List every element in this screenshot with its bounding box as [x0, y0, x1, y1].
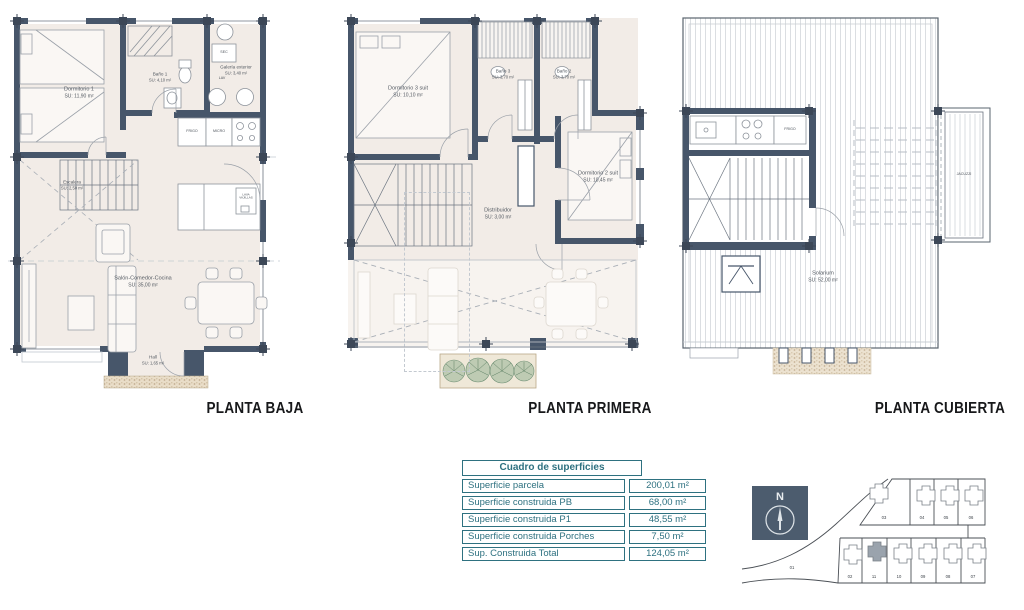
dishwasher-label: LAVA VAJILLAS [236, 194, 256, 201]
row-value: 200,01 m² [629, 479, 706, 493]
room-name: Escalera [61, 180, 83, 186]
room-name: Dormitorio 2 suit [578, 170, 618, 177]
plot-number: 03 [882, 515, 887, 520]
title-planta-cubierta: PLANTA CUBIERTA [860, 399, 1020, 416]
room-label-hall: Hall SU: 1,65 m² [142, 355, 164, 366]
room-name: Salón-Comedor-Cocina [114, 275, 171, 282]
surfaces-table: Cuadro de superficies Superficie parcela… [462, 460, 710, 564]
plot-number-highlighted: 11 [872, 574, 877, 579]
floorplan-sheet: Dormitorio 1 SU: 11,90 m² Baño 1 SU: 4,1… [0, 0, 1024, 610]
bottom-plot-block [838, 538, 985, 583]
room-label-bano-1: Baño 1 SU: 4,10 m² [149, 72, 171, 83]
title-planta-primera: PLANTA PRIMERA [510, 399, 670, 416]
room-area: SU: 10,10 m² [388, 92, 428, 98]
wardrobe [478, 22, 532, 58]
row-value: 124,05 m² [629, 547, 706, 561]
title-planta-baja: PLANTA BAJA [175, 399, 335, 416]
room-area: SU: 3,00 m² [484, 214, 512, 220]
room-name: Dormitorio 3 suit [388, 85, 428, 92]
plot-number: 02 [848, 574, 853, 579]
room-name: Galería exterior [220, 65, 252, 71]
room-area: SU: 3,40 m² [220, 70, 252, 75]
table-row: Superficie parcela 200,01 m² [462, 479, 710, 493]
plot-number: 01 [790, 565, 795, 570]
plot-number: 07 [971, 574, 976, 579]
row-label: Superficie construida PB [462, 496, 625, 510]
fridge-label: FRIGO [784, 128, 795, 132]
room-label-dormitorio-3: Dormitorio 3 suit SU: 10,10 m² [388, 85, 428, 98]
kitchen-island [178, 184, 260, 230]
table-row: Sup. Construida Total 124,05 m² [462, 547, 710, 561]
room-label-salon: Salón-Comedor-Cocina SU: 35,00 m² [114, 275, 171, 288]
room-name: Distribuidor [484, 207, 512, 214]
row-label: Superficie construida Porches [462, 530, 625, 544]
room-label-solarium: Solarium SU: 52,00 m² [808, 270, 837, 283]
entry-steps [690, 348, 871, 374]
coffee-table [68, 296, 94, 330]
plot-number: 06 [969, 515, 974, 520]
room-area: SU: 1,65 m² [142, 360, 164, 365]
room-label-bano-3: Baño 3 SU: 3,70 m² [492, 69, 514, 80]
plot-number: 09 [921, 574, 926, 579]
siteplan-drawing: 03 04 05 06 02 11 10 09 08 07 01 [740, 477, 1008, 607]
room-area: SU: 3,70 m² [492, 74, 514, 79]
table-row: Superficie construida Porches 7,50 m² [462, 530, 710, 544]
row-label: Superficie parcela [462, 479, 625, 493]
room-area: SU: 52,00 m² [808, 277, 837, 283]
road-curve-lower [742, 579, 838, 583]
row-value: 7,50 m² [629, 530, 706, 544]
room-label-distribuidor: Distribuidor SU: 3,00 m² [484, 207, 512, 220]
closet [518, 146, 534, 206]
room-area: SU: 35,00 m² [114, 282, 171, 288]
room-area: SU: 2,50 m² [61, 185, 83, 190]
table-row: Superficie construida P1 48,55 m² [462, 513, 710, 527]
surfaces-table-header: Cuadro de superficies [462, 460, 642, 476]
room-label-dormitorio-1: Dormitorio 1 SU: 11,90 m² [64, 86, 94, 99]
planta-cubierta-drawing [678, 12, 1013, 390]
plan-planta-baja: Dormitorio 1 SU: 11,90 m² Baño 1 SU: 4,1… [8, 14, 280, 396]
room-area: SU: 3,70 m² [553, 74, 575, 79]
row-value: 48,55 m² [629, 513, 706, 527]
row-label: Superficie construida P1 [462, 513, 625, 527]
site-houses [844, 484, 986, 564]
jacuzzi-label: JACUZZI [957, 173, 972, 177]
plan-planta-primera: Dormitorio 3 suit SU: 10,10 m² Baño 3 SU… [340, 14, 650, 394]
outdoor-shower [722, 256, 760, 292]
adjacent-villa-ghost-outline [404, 192, 470, 372]
room-label-dormitorio-2: Dormitorio 2 suit SU: 10,45 m² [578, 170, 618, 183]
room-name: Dormitorio 1 [64, 86, 94, 93]
dryer-label: SEC [220, 51, 227, 55]
room-label-bano-2: Baño 2 SU: 3,70 m² [553, 69, 575, 80]
armchair [96, 224, 130, 262]
microwave-label: MICRO [213, 130, 225, 134]
plot-number: 08 [946, 574, 951, 579]
plan-planta-cubierta: Solarium SU: 52,00 m² FRIGO JACUZZI [678, 12, 1013, 390]
plot-number: 05 [944, 515, 949, 520]
row-value: 68,00 m² [629, 496, 706, 510]
washer-label: LAV [219, 77, 226, 81]
room-area: SU: 11,90 m² [64, 93, 94, 99]
room-label-escalera: Escalera SU: 2,50 m² [61, 180, 83, 191]
plot-number: 04 [920, 515, 925, 520]
table-row: Superficie construida PB 68,00 m² [462, 496, 710, 510]
room-name: Solarium [808, 270, 837, 277]
fridge-label: FRIGO [186, 130, 197, 134]
road-curve [742, 479, 888, 569]
room-area: SU: 10,45 m² [578, 177, 618, 183]
highlighted-house [868, 542, 886, 561]
porch-slab [22, 352, 102, 362]
room-area: SU: 4,10 m² [149, 77, 171, 82]
row-label: Sup. Construida Total [462, 547, 625, 561]
room-label-galeria-exterior: Galería exterior SU: 3,40 m² [220, 65, 252, 76]
wardrobe [542, 22, 590, 58]
plot-number: 10 [897, 574, 902, 579]
porch-stone [104, 376, 208, 388]
